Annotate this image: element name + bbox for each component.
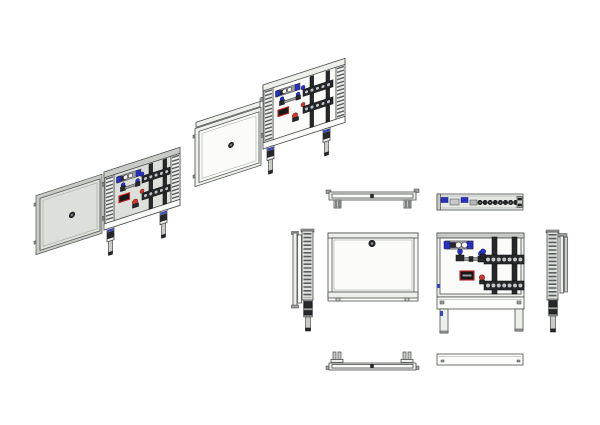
bottom-rail (437, 297, 524, 309)
leg-clip-blue (440, 311, 443, 316)
sight-glass (456, 242, 462, 248)
door-lock-keyhole (371, 242, 374, 245)
valve-body (480, 280, 485, 284)
cabinet-leg (323, 127, 330, 156)
top-rail (328, 233, 418, 238)
cabinet-bottom-outline (437, 354, 523, 365)
ortho-top-view-closed (326, 189, 419, 208)
pipe-coupling (469, 257, 473, 262)
panel-edge (298, 235, 302, 303)
cabinet-door-a (34, 174, 102, 255)
ortho-bottom-view-closed (326, 352, 419, 370)
cabinet-leg (515, 309, 523, 331)
cap-tick (518, 198, 522, 200)
lock-mark (371, 195, 374, 198)
cabinet-leg (549, 299, 558, 332)
cabinet-leg (304, 300, 313, 331)
ortho-side-view-right (546, 230, 568, 332)
ortho-bottom-view-open (437, 354, 523, 365)
rail-mark (517, 360, 520, 362)
ortho-front-view-closed (328, 233, 418, 301)
foot (334, 200, 341, 208)
ortho-side-view-left (292, 229, 315, 331)
cabinet-leg (440, 309, 448, 333)
bar-valve-red (479, 275, 484, 280)
cabinet-door-b (193, 101, 261, 187)
foot (401, 352, 413, 363)
pump-top (450, 199, 459, 205)
foot (404, 200, 411, 208)
cabinet-body-b (260, 58, 345, 177)
cad-drawing (0, 0, 600, 425)
iso-exploded-view-b (193, 58, 345, 187)
lock-mark (371, 365, 374, 368)
coupling-top (470, 200, 477, 205)
rail-mark (517, 301, 521, 304)
leg-foot (440, 331, 448, 333)
rail-mark (441, 360, 444, 362)
cabinet-leg (107, 227, 114, 256)
frame-edge (565, 237, 568, 292)
foot (331, 352, 343, 363)
valve-blue (458, 249, 463, 254)
pump-valve-blue (136, 170, 141, 177)
cap-tick (518, 204, 522, 206)
valve-blue-top (441, 198, 448, 203)
cad-sheet (0, 0, 600, 425)
mount-rail (163, 159, 167, 205)
bar-valve-blue (480, 249, 485, 254)
pump-valve-blue (444, 242, 450, 249)
pump-valve-blue (295, 84, 300, 91)
label-text-lines (463, 275, 472, 277)
foot-mark (336, 298, 340, 301)
leg-foot (551, 329, 556, 332)
sight-glass (462, 242, 468, 248)
leg-foot (306, 328, 311, 331)
frame-clip-blue (437, 284, 440, 288)
bracket-cap (292, 305, 299, 308)
door-edge (560, 236, 564, 293)
foot-mark (405, 298, 409, 301)
mount-rail (310, 76, 314, 128)
valve-body (481, 254, 486, 258)
valve-blue-top (461, 198, 468, 203)
wall-bracket (293, 233, 297, 307)
bottom-rail (328, 292, 418, 298)
ortho-top-view-open (437, 194, 523, 210)
ortho-front-view-open (437, 233, 524, 333)
cabinet-leg (160, 210, 167, 239)
rail-mark (440, 301, 444, 304)
pump-body (451, 243, 456, 248)
cabinet-leg (267, 145, 274, 174)
leg-foot (515, 329, 523, 331)
mount-rail (326, 70, 330, 122)
left-cap (437, 194, 441, 210)
cabinet-body-a (101, 147, 180, 258)
valve-body (456, 255, 464, 261)
pump-valve-blue (276, 90, 281, 97)
pump-valve-blue (467, 242, 473, 249)
mount-rail (149, 163, 153, 209)
pump-valve-blue (117, 176, 122, 183)
wall-tab-icon (260, 97, 263, 102)
iso-exploded-view-a (34, 147, 180, 258)
top-rail (437, 233, 524, 238)
